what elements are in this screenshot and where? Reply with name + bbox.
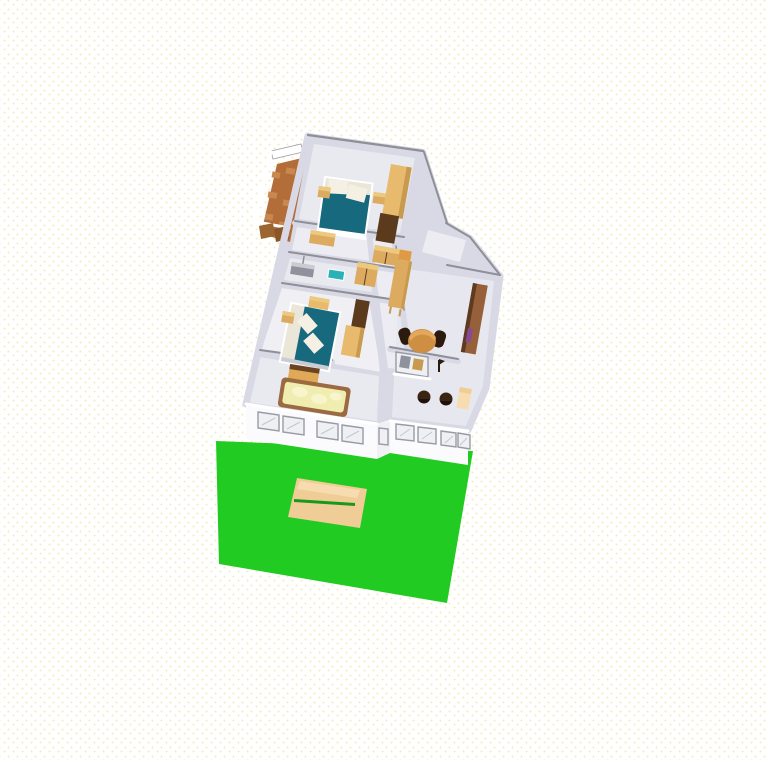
balcony-railing-top-box	[271, 144, 303, 159]
stool-1[interactable]	[418, 391, 431, 404]
window-5[interactable]	[379, 428, 388, 445]
window-8[interactable]	[441, 431, 456, 447]
stool-2[interactable]	[440, 393, 453, 406]
house	[246, 135, 500, 465]
floorplan-3d-scene	[0, 0, 768, 760]
double-bed-top[interactable]	[316, 176, 374, 240]
teal-sink[interactable]	[328, 269, 345, 280]
kitchen-counter-item[interactable]	[412, 358, 424, 370]
nightstand-bottom-room[interactable]	[281, 311, 295, 324]
render-viewport[interactable]	[0, 0, 768, 760]
garden	[216, 441, 473, 603]
cabinet-corridor-2[interactable]	[354, 262, 379, 287]
pillow	[328, 179, 348, 194]
nightstand-left[interactable]	[317, 186, 330, 199]
nightstand-right[interactable]	[372, 192, 385, 205]
kitchen-appliance[interactable]	[399, 355, 411, 368]
